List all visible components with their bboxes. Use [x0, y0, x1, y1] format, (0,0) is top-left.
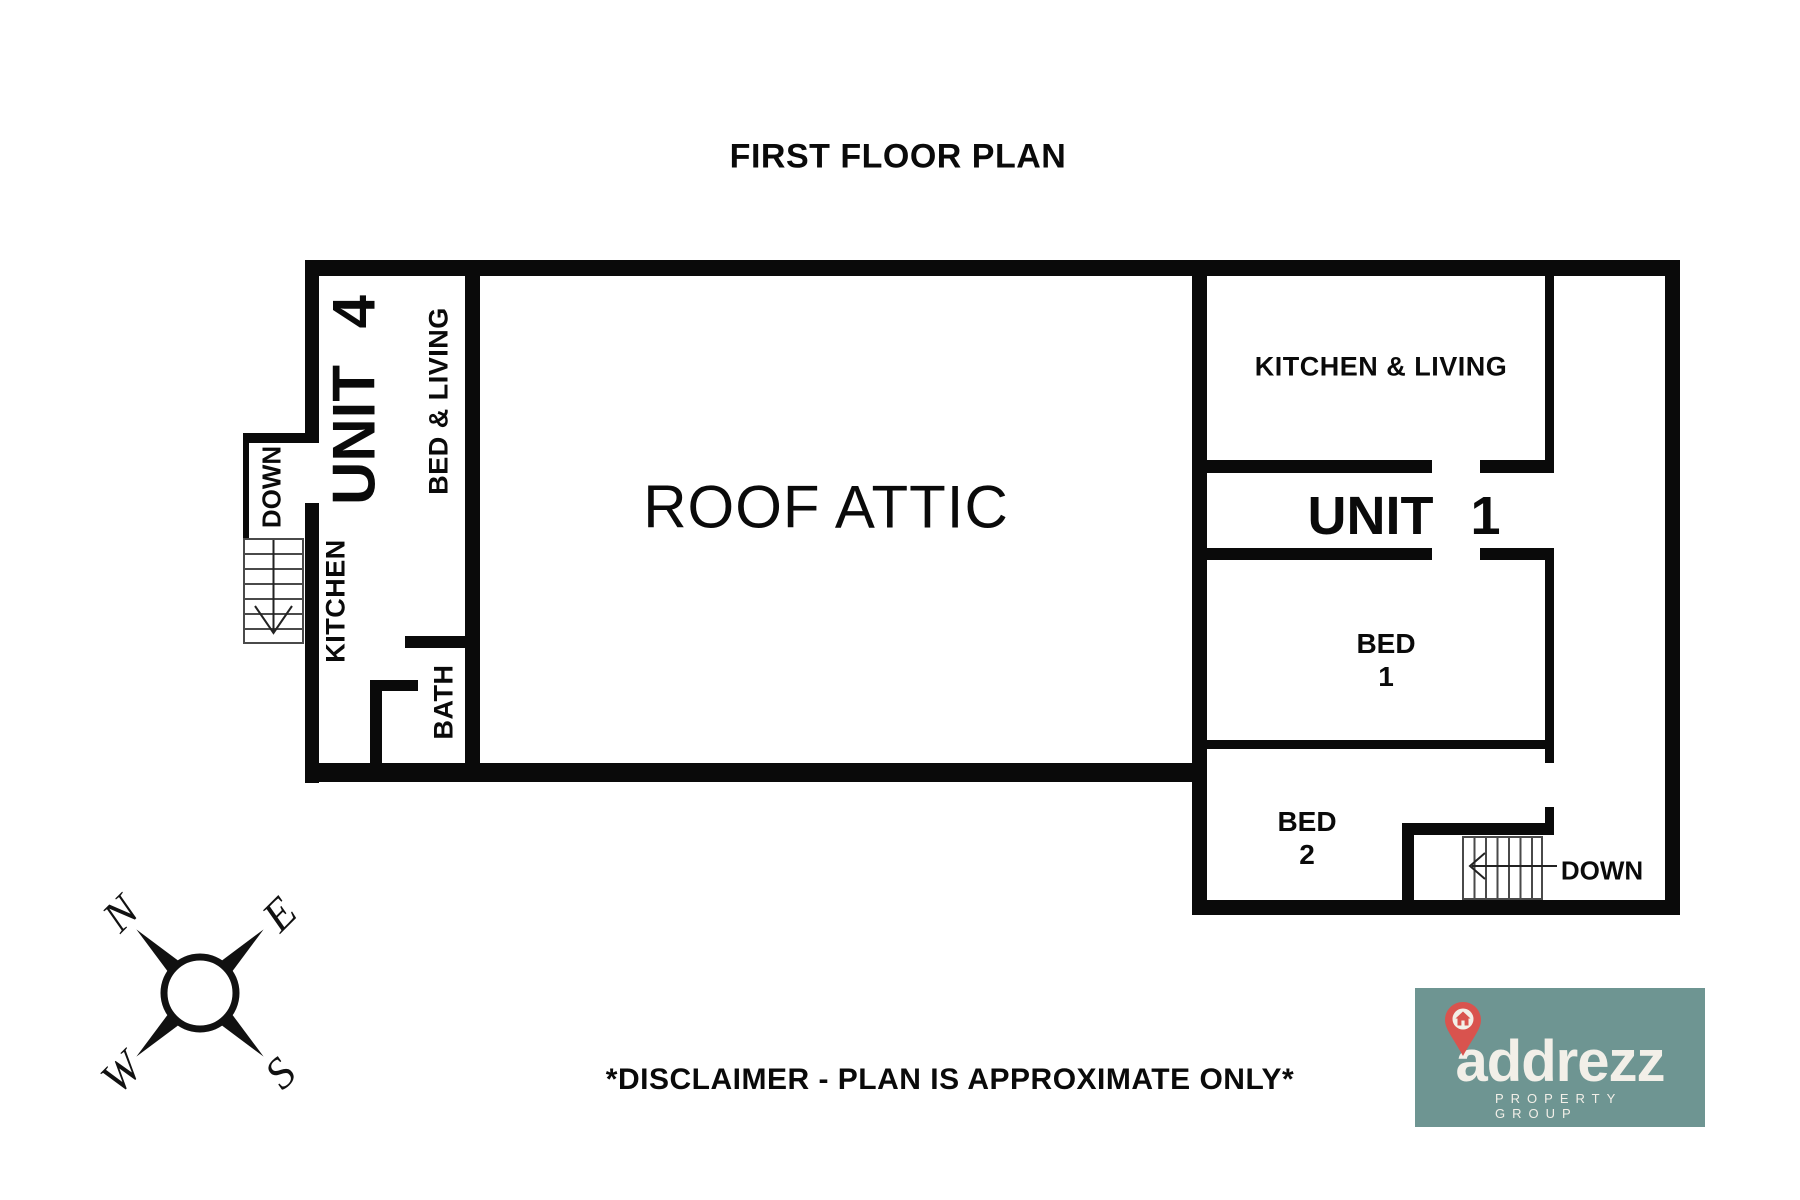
compass-rose-icon: N E S W: [80, 873, 320, 1113]
bed2-line2: 2: [1277, 838, 1336, 871]
disclaimer-text: *DISCLAIMER - PLAN IS APPROXIMATE ONLY*: [606, 1063, 1294, 1097]
wall-stair-enclosure-left: [1402, 823, 1414, 900]
wall-lobby-left: [243, 433, 249, 538]
wall-right-outer: [1665, 260, 1680, 915]
wall-bed1-bottom: [1207, 740, 1554, 749]
wall-unit4-right: [465, 260, 480, 782]
room-label-bed2: BED 2: [1277, 805, 1336, 871]
staircase-right: [1462, 836, 1562, 900]
wall-lobby-top: [243, 433, 319, 443]
stairs-down-label-right: DOWN: [1561, 856, 1643, 887]
unit1-name: UNIT 1: [1307, 485, 1500, 547]
wall-top: [305, 260, 1680, 276]
logo-addrezz: addrezz PROPERTY GROUP: [1415, 988, 1705, 1127]
wall-kitchenliving-bottom-b: [1480, 460, 1554, 473]
unit4-name: UNIT 4: [320, 295, 389, 505]
logo-brand-text: addrezz: [1456, 1033, 1665, 1091]
floor-plan-page: FIRST FLOOR PLAN: [0, 0, 1800, 1200]
compass-label-south: S: [255, 1048, 305, 1098]
wall-bed1-top-a: [1207, 548, 1432, 560]
staircase-left: [243, 538, 304, 645]
room-label-roof-attic: ROOF ATTIC: [643, 473, 1009, 542]
wall-attic-unit1-divider: [1192, 260, 1207, 915]
bed2-line1: BED: [1277, 805, 1336, 838]
stairs-down-label-left: DOWN: [257, 446, 288, 528]
page-title: FIRST FLOOR PLAN: [730, 138, 1067, 177]
wall-inner-right-mid: [1545, 560, 1554, 763]
wall-inner-right-upper: [1545, 276, 1554, 460]
room-label-bath: BATH: [429, 665, 460, 740]
room-label-bed-living: BED & LIVING: [424, 307, 455, 495]
room-label-bed1: BED 1: [1356, 627, 1415, 693]
wall-bath-top: [405, 636, 466, 648]
wall-bottom-left-section: [305, 763, 1207, 782]
logo-tagline-text: PROPERTY GROUP: [1495, 1091, 1635, 1121]
wall-stair-enclosure-top: [1402, 823, 1549, 835]
wall-unit1-bottom: [1192, 900, 1680, 915]
room-label-kitchen-living: KITCHEN & LIVING: [1255, 352, 1508, 383]
location-pin-icon: [1445, 1002, 1481, 1062]
wall-bed1-top-b: [1480, 548, 1554, 560]
down-arrow-left-icon: [1470, 853, 1557, 879]
wall-bath-corner-vertical: [370, 680, 382, 764]
room-label-kitchen: KITCHEN: [321, 539, 352, 663]
wall-left-upper: [305, 260, 319, 433]
bed1-line2: 1: [1356, 660, 1415, 693]
wall-left-lower: [305, 503, 319, 783]
bed1-line1: BED: [1356, 627, 1415, 660]
wall-kitchenliving-bottom-a: [1207, 460, 1432, 473]
